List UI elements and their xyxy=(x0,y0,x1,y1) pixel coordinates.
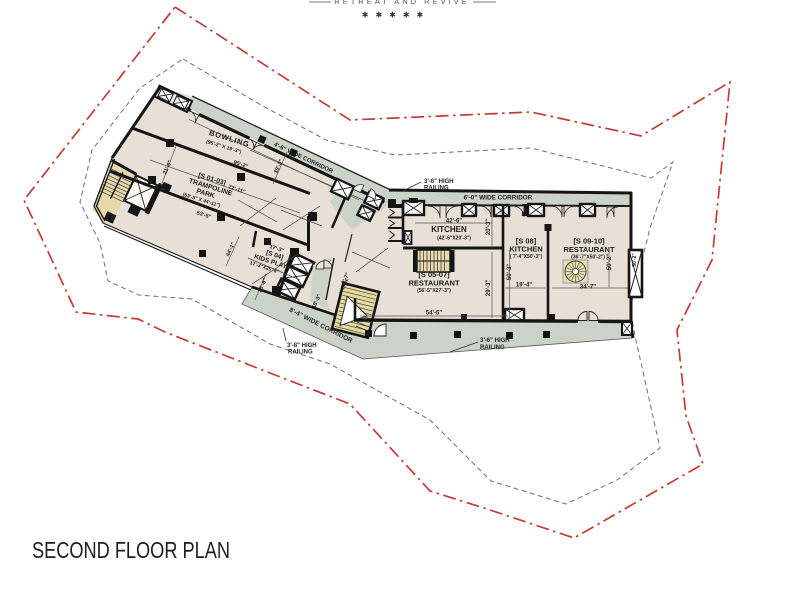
svg-text:(42'-6"X20'-3"): (42'-6"X20'-3") xyxy=(437,236,471,242)
svg-text:3'-8" HIGH: 3'-8" HIGH xyxy=(287,343,317,349)
svg-text:KITCHEN: KITCHEN xyxy=(509,245,542,254)
svg-text:RESTAURANT: RESTAURANT xyxy=(563,245,615,254)
svg-text:54'-5": 54'-5" xyxy=(426,311,442,317)
svg-text:20'-3": 20'-3" xyxy=(486,219,492,235)
svg-text:50'-3": 50'-3" xyxy=(507,264,513,280)
svg-text:SECOND FLOOR PLAN: SECOND FLOOR PLAN xyxy=(32,537,230,563)
svg-text:6'-0" WIDE CORRIDOR: 6'-0" WIDE CORRIDOR xyxy=(464,195,533,202)
svg-text:19'-4": 19'-4" xyxy=(516,283,532,289)
svg-text:50'-2": 50'-2" xyxy=(607,254,613,270)
svg-text:3'-6" HIGH: 3'-6" HIGH xyxy=(424,179,454,185)
svg-text:RAILING: RAILING xyxy=(288,350,313,356)
svg-text:✱✱✱✱✱: ✱✱✱✱✱ xyxy=(362,11,431,20)
svg-text:RAILING: RAILING xyxy=(424,186,449,192)
svg-text:RETREAT AND REVIVE: RETREAT AND REVIVE xyxy=(334,0,469,6)
svg-text:( 7'-4"X50'-3"): ( 7'-4"X50'-3") xyxy=(510,254,543,260)
svg-text:RAILING: RAILING xyxy=(480,345,505,351)
svg-text:RESTAURANT: RESTAURANT xyxy=(408,279,460,288)
svg-text:KITCHEN: KITCHEN xyxy=(431,225,467,234)
svg-text:(56'-5"X27'-3"): (56'-5"X27'-3") xyxy=(417,288,451,294)
svg-text:42'-6": 42'-6" xyxy=(446,219,462,225)
svg-text:29'-3": 29'-3" xyxy=(486,280,492,296)
svg-text:50'-2": 50'-2" xyxy=(632,253,638,267)
svg-text:34'-7": 34'-7" xyxy=(580,285,596,291)
svg-text:(36'-7"X50'-2"): (36'-7"X50'-2") xyxy=(571,255,605,261)
svg-text:3'-6" HIGH: 3'-6" HIGH xyxy=(480,338,510,344)
